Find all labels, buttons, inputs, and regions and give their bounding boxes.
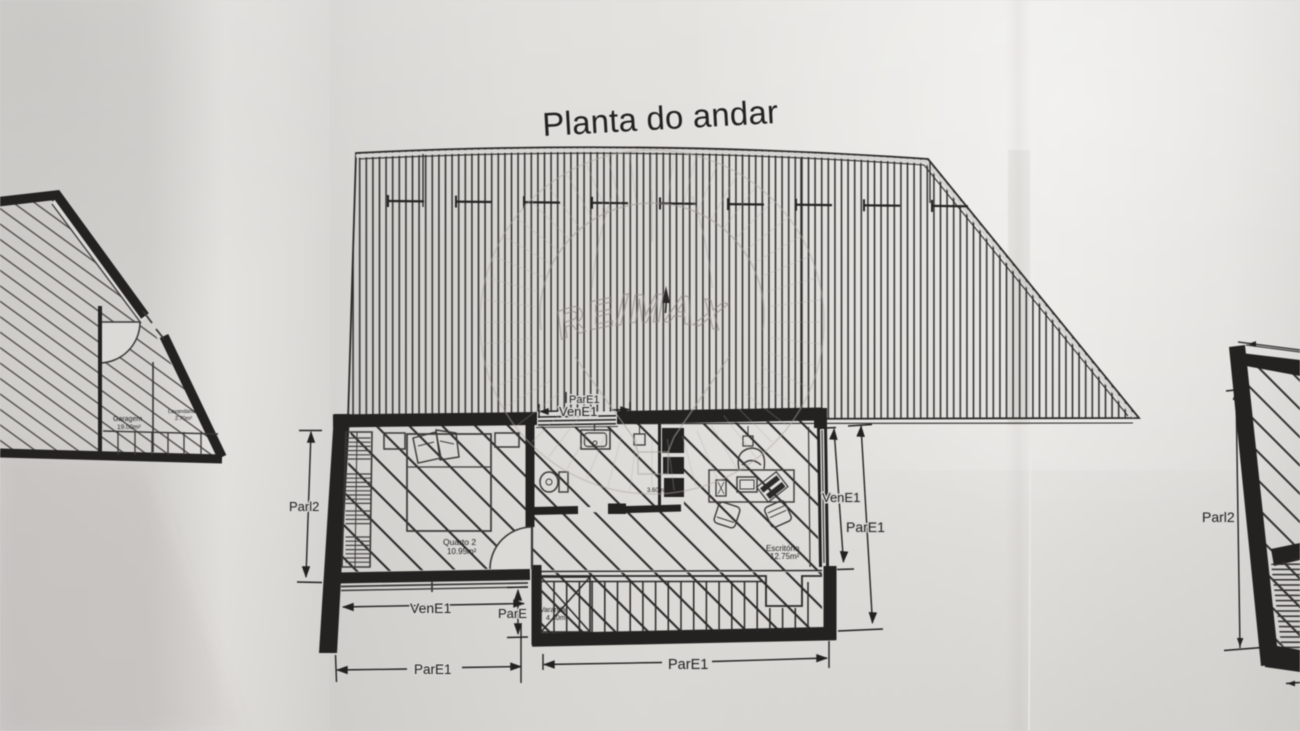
svg-text:ParE1: ParE1 — [846, 519, 885, 535]
svg-text:Parl2: Parl2 — [289, 499, 319, 514]
svg-text:VenE1: VenE1 — [822, 490, 860, 505]
svg-text:ParE1: ParE1 — [668, 657, 708, 673]
svg-text:ParE: ParE — [498, 606, 527, 621]
svg-text:Quarto 2: Quarto 2 — [443, 537, 476, 547]
svg-text:VenE1: VenE1 — [410, 600, 451, 616]
svg-text:10.95m²: 10.95m² — [447, 547, 477, 556]
svg-text:VenE1: VenE1 — [559, 404, 597, 419]
svg-text:2.70m²: 2.70m² — [175, 416, 192, 422]
svg-text:19.00m²: 19.00m² — [117, 424, 142, 431]
svg-text:Garagem: Garagem — [113, 416, 142, 423]
svg-text:ParE1: ParE1 — [414, 662, 452, 677]
svg-text:Lavandaria: Lavandaria — [168, 409, 196, 415]
svg-text:4.40m²: 4.40m² — [546, 615, 568, 622]
svg-text:12.75m²: 12.75m² — [770, 552, 800, 561]
svg-text:Parl2: Parl2 — [1202, 509, 1235, 525]
svg-text:Varanda: Varanda — [540, 607, 566, 614]
